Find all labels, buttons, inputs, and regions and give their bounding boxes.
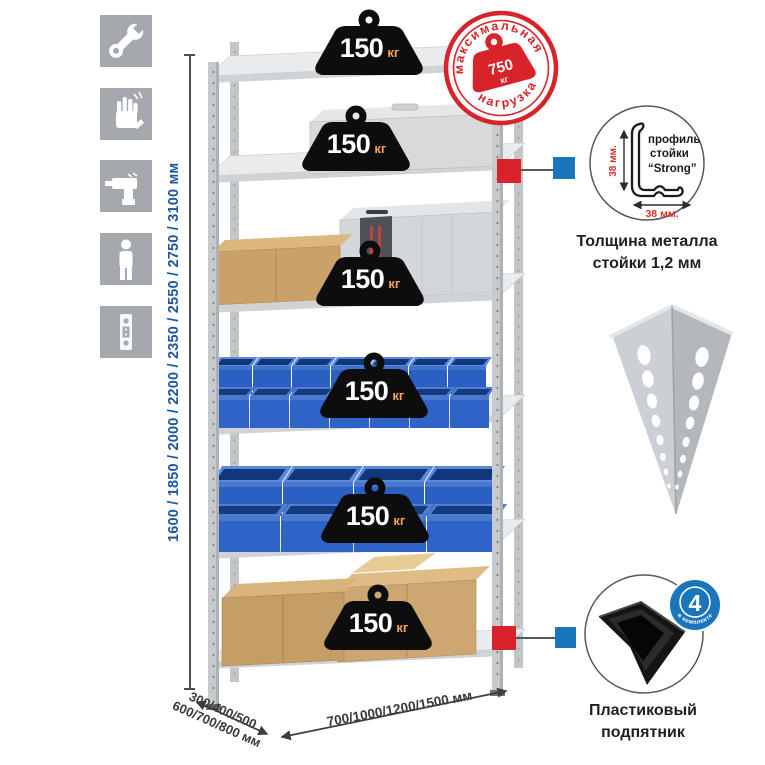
profile-callout-red-square (497, 159, 521, 183)
profile-label-line2: стойки (650, 148, 689, 160)
foot-caption-line2: подпятник (568, 722, 718, 744)
profile-label-line1: профиль (648, 134, 701, 146)
shelf-load-unit: кг (392, 388, 404, 403)
wrench-icon (100, 15, 152, 67)
shelf-load-unit: кг (388, 276, 400, 291)
drill-icon (100, 160, 152, 212)
shelf-load-weight-6: 150кг (321, 583, 436, 655)
included-count-badge: 4 в комплекте (667, 577, 723, 633)
foot-callout-red-square (492, 626, 516, 650)
rack-front-right-post (490, 48, 505, 696)
shelf-load-value: 150 (340, 33, 384, 63)
shelf-load-weight-2: 150кг (299, 104, 414, 176)
shelf-load-weight-4: 150кг (317, 351, 432, 423)
shelf-load-unit: кг (396, 620, 408, 635)
profile-callout-line (520, 169, 554, 171)
shelf-load-value: 150 (341, 264, 385, 294)
foot-callout-blue-square (555, 627, 576, 648)
foot-callout-line (515, 637, 556, 639)
corner-post-image (600, 293, 745, 523)
shelving-infographic: 1600 / 1850 / 2000 / 2200 / 2350 / 2550 … (0, 0, 765, 765)
rack-front-left-post (206, 62, 221, 710)
profile-dim-vertical: 38 мм. (608, 145, 619, 177)
shelf-load-weight-1: 150кг (312, 8, 427, 80)
height-values-label: 1600 / 1850 / 2000 / 2200 / 2350 / 2550 … (166, 202, 182, 542)
height-dimension-line (189, 55, 191, 689)
shelf-load-weight-5: 150кг (318, 476, 433, 548)
shelf-load-weight-3: 150кг (313, 239, 428, 311)
shelf-load-value: 150 (346, 501, 390, 531)
profile-caption: Толщина металла стойки 1,2 мм (568, 231, 726, 274)
shelf-load-value: 150 (327, 129, 371, 159)
shelf-load-unit: кг (387, 45, 399, 60)
profile-label-line3: “Strong” (648, 163, 697, 175)
shelf-load-value: 150 (345, 376, 389, 406)
shelf-load-value: 150 (349, 608, 393, 638)
person-icon (100, 233, 152, 285)
profile-caption-line1: Толщина металла (568, 231, 726, 253)
profile-dim-horizontal: 38 мм. (645, 208, 678, 220)
plastic-foot-caption: Пластиковый подпятник (568, 700, 718, 743)
badge-count-value: 4 (689, 590, 702, 616)
foot-caption-line1: Пластиковый (568, 700, 718, 722)
profile-caption-line2: стойки 1,2 мм (568, 253, 726, 275)
shelf-load-unit: кг (393, 513, 405, 528)
perforated-strip-icon (100, 306, 152, 358)
shelf-load-unit: кг (374, 141, 386, 156)
profile-callout-blue-square (553, 157, 575, 179)
gloves-icon (100, 88, 152, 140)
max-load-stamp: максимальная нагрузка 750 кг (442, 9, 560, 127)
profile-detail-circle: 38 мм. 38 мм. профиль стойки “Strong” (588, 104, 706, 222)
